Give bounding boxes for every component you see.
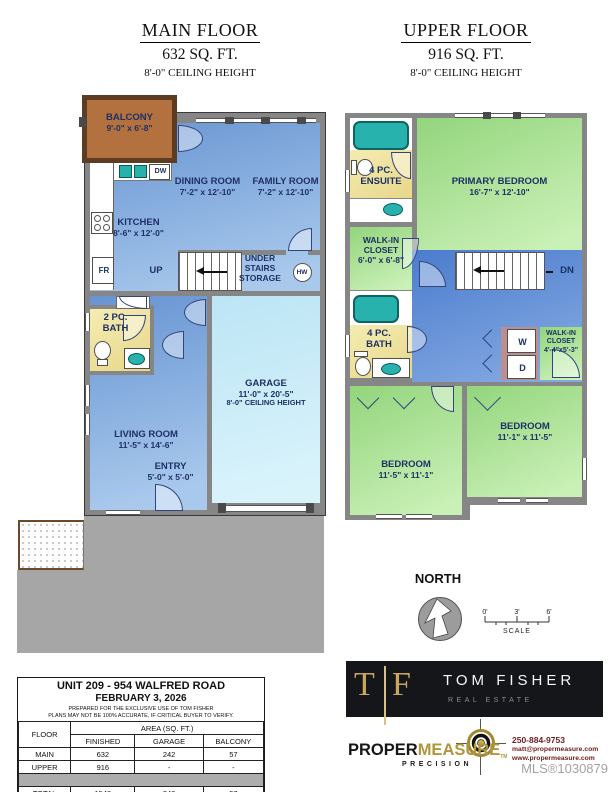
col-finished: FINISHED (71, 735, 135, 748)
window (106, 510, 140, 515)
stairs-arrow (203, 271, 227, 273)
scale-tick-0: 0' (482, 609, 487, 616)
toilet (94, 341, 111, 360)
prepared-note: PREPARED FOR THE EXCLUSIVE USE OF TOM FI… (18, 706, 264, 712)
wic2-line2: CLOSET (538, 338, 584, 346)
scale-bar: 0' 3' 6' SCALE (482, 605, 554, 635)
ensuite-tub (353, 121, 409, 150)
row-upper-balcony: - (203, 761, 263, 774)
entry-name: ENTRY (128, 461, 213, 472)
tf-divider (384, 666, 386, 725)
window (376, 514, 402, 519)
window-post (297, 117, 306, 124)
pm-precision: PRECISION (402, 761, 472, 768)
ensuite-line1: 4 PC. (350, 165, 412, 176)
upper-bath-label: 4 PC. BATH (350, 328, 408, 350)
wic1-dims: 6'-0" x 6'-8" (350, 255, 412, 265)
driveway (17, 495, 325, 653)
brand-name: TOM FISHER (443, 672, 575, 689)
total-label: TOTAL (19, 787, 71, 792)
total-balcony: 57 (203, 787, 263, 792)
garage-door-post (306, 503, 314, 513)
row-main-balcony: 57 (203, 748, 263, 761)
washer-label: W (508, 337, 537, 347)
dryer-label: D (508, 363, 537, 373)
main-floor-ceiling: 8'-0" CEILING HEIGHT (120, 67, 280, 79)
main-bath-line2: BATH (88, 323, 143, 334)
window (455, 113, 545, 118)
balcony-label: BALCONY 9'-0" x 6'-8" (87, 112, 172, 133)
dishwasher-label: DW (150, 168, 171, 175)
family-room-label: FAMILY ROOM 7'-2" x 12'-10" (238, 176, 333, 197)
dryer: D (507, 355, 536, 379)
bath-sink (381, 363, 401, 375)
washer: W (507, 329, 536, 353)
dn-label: DN (554, 265, 580, 276)
balcony-name: BALCONY (87, 112, 172, 123)
unit-address: UNIT 209 - 954 WALFRED ROAD (18, 678, 264, 692)
upper-floor-name: UPPER FLOOR (401, 20, 530, 43)
primary-name: PRIMARY BEDROOM (432, 176, 567, 187)
area-table: FLOOR AREA (SQ. FT.) FINISHED GARAGE BAL… (18, 721, 264, 792)
wall-segment (150, 305, 154, 375)
bedroom-right-label: BEDROOM 11'-1" x 11'-5" (470, 421, 580, 442)
kitchen-dims: 8'-6" x 12'-0" (96, 228, 181, 238)
info-table-header: UNIT 209 - 954 WALFRED ROAD FEBRUARY 3, … (18, 678, 264, 719)
hw-label: HW (294, 269, 310, 276)
total-garage: 242 (135, 787, 203, 792)
toilet (355, 357, 371, 376)
total-row: TOTAL 1548 242 57 (19, 787, 264, 792)
pm-measure: MEASURE (418, 741, 501, 759)
table-row: MAIN 632 242 57 (19, 748, 264, 761)
entry-dims: 5'-0" x 5'-0" (128, 472, 213, 482)
info-table: UNIT 209 - 954 WALFRED ROAD FEBRUARY 3, … (17, 677, 265, 792)
col-floor: FLOOR (19, 722, 71, 748)
wic1-line1: WALK-IN (350, 235, 412, 245)
primary-dims: 16'-7" x 12'-10" (432, 187, 567, 197)
pm-trademark: TM (500, 754, 507, 760)
living-name: LIVING ROOM (96, 429, 196, 440)
upper-bath-line2: BATH (350, 339, 408, 350)
main-bath-label: 2 PC. BATH (88, 312, 143, 334)
toilet-tank (97, 359, 108, 366)
kitchen-sink (119, 165, 132, 178)
bedroom-left-label: BEDROOM 11'-5" x 11'-1" (352, 459, 460, 480)
family-name: FAMILY ROOM (238, 176, 333, 187)
window-post (483, 112, 491, 119)
stairs-arrowhead (473, 266, 481, 274)
kitchen-label: KITCHEN 8'-6" x 12'-0" (96, 217, 181, 238)
spacer-row (19, 774, 264, 787)
bedroom-right-name: BEDROOM (470, 421, 580, 432)
row-upper-floor: UPPER (19, 761, 71, 774)
family-dims: 7'-2" x 12'-10" (238, 187, 333, 197)
main-floor-title: MAIN FLOOR 632 SQ. FT. 8'-0" CEILING HEI… (120, 20, 280, 79)
under-stairs-line1: UNDER (230, 253, 290, 263)
garage-door-post (218, 503, 226, 513)
mls-number: MLS®1030879 (500, 761, 608, 776)
under-stairs-label: UNDER STAIRS STORAGE (230, 253, 290, 283)
scale-tick-3: 3' (514, 609, 519, 616)
fridge-label: FR (93, 266, 115, 275)
upper-floor-ceiling: 8'-0" CEILING HEIGHT (386, 67, 546, 79)
bedroom-left-dims: 11'-5" x 11'-1" (352, 470, 460, 480)
wic2-dims: 4'-4"x5'-3" (538, 347, 584, 355)
bath-sink (128, 353, 145, 365)
window-post (225, 117, 234, 124)
upper-bath-line1: 4 PC. (350, 328, 408, 339)
living-dims: 11'-5" x 14'-6" (96, 440, 196, 450)
bath-tub (353, 295, 399, 323)
wic1-line2: CLOSET (350, 245, 412, 255)
tf-monogram-t: T (354, 668, 375, 702)
scale-label: SCALE (503, 628, 531, 635)
row-main-floor: MAIN (19, 748, 71, 761)
pm-proper: PROPER (348, 741, 418, 759)
ensuite-line2: ENSUITE (350, 176, 412, 187)
wic1-label: WALK-IN CLOSET 6'-0" x 6'-8" (350, 235, 412, 265)
primary-bedroom-label: PRIMARY BEDROOM 16'-7" x 12'-10" (432, 176, 567, 197)
window (406, 514, 432, 519)
living-room-label: LIVING ROOM 11'-5" x 14'-6" (96, 429, 196, 450)
main-floor-area: 632 SQ. FT. (120, 46, 280, 64)
entry-label: ENTRY 5'-0" x 5'-0" (128, 461, 213, 482)
col-balcony: BALCONY (203, 735, 263, 748)
brand-tagline: REAL ESTATE (448, 697, 533, 704)
accuracy-note: PLANS MAY NOT BE 100% ACCURATE, IF CRITI… (18, 713, 264, 719)
fridge: FR (92, 257, 114, 284)
garage-door (226, 505, 306, 512)
scale-tick-6: 6' (546, 609, 551, 616)
col-area: AREA (SQ. FT.) (71, 722, 264, 735)
plan-date: FEBRUARY 3, 2026 (18, 693, 264, 704)
up-label: UP (140, 265, 172, 276)
bedroom-left-name: BEDROOM (352, 459, 460, 470)
stairs-arrowhead (196, 267, 204, 275)
tom-fisher-logo: T F TOM FISHER REAL ESTATE (346, 661, 603, 717)
ensuite-sink (383, 203, 403, 216)
window (582, 458, 587, 480)
upper-floor-title: UPPER FLOOR 916 SQ. FT. 8'-0" CEILING HE… (386, 20, 546, 79)
phone-number: 250-884-9753 (512, 735, 598, 746)
ensuite-label: 4 PC. ENSUITE (350, 165, 412, 187)
window-post (513, 112, 521, 119)
patio (18, 520, 84, 570)
main-bath-line1: 2 PC. (88, 312, 143, 323)
row-main-garage: 242 (135, 748, 203, 761)
garage-ceiling: 8'-0" CEILING HEIGHT (216, 399, 316, 408)
email-address: matt@propermeasure.com (512, 746, 598, 755)
table-row: UPPER 916 - - (19, 761, 264, 774)
main-floor-name: MAIN FLOOR (140, 20, 261, 43)
propermeasure-logo: PROPERMEASURETM (348, 741, 507, 760)
window (85, 414, 90, 435)
bedroom-right-dims: 11'-1" x 11'-5" (470, 432, 580, 442)
upper-floor-area: 916 SQ. FT. (386, 46, 546, 64)
balcony-post (79, 117, 86, 127)
wic2-label: WALK-IN CLOSET 4'-4"x5'-3" (538, 330, 584, 355)
row-upper-finished: 916 (71, 761, 135, 774)
north-label: NORTH (408, 571, 468, 586)
stairs-arrow (480, 270, 504, 272)
row-main-finished: 632 (71, 748, 135, 761)
hot-water-tank: HW (293, 263, 312, 282)
balcony-dims: 9'-0" x 6'-8" (87, 123, 172, 133)
contact-block: 250-884-9753 matt@propermeasure.com www.… (512, 735, 598, 764)
wic2-line1: WALK-IN (538, 330, 584, 338)
spacer-cell (19, 774, 264, 787)
row-upper-garage: - (135, 761, 203, 774)
col-garage: GARAGE (135, 735, 203, 748)
tf-monogram-f: F (392, 668, 411, 702)
total-finished: 1548 (71, 787, 135, 792)
kitchen-sink (134, 165, 147, 178)
dn-dash (546, 271, 553, 273)
kitchen-name: KITCHEN (96, 217, 181, 228)
garage-name: GARAGE (216, 378, 316, 389)
wall-segment (90, 371, 154, 375)
under-stairs-line3: STORAGE (230, 273, 290, 283)
compass-icon (417, 596, 463, 642)
window-post (261, 117, 270, 124)
floor-plan-page: MAIN FLOOR 632 SQ. FT. 8'-0" CEILING HEI… (0, 0, 612, 792)
garage-label: GARAGE 11'-0" x 20'-5" 8'-0" CEILING HEI… (216, 378, 316, 408)
window (498, 498, 520, 503)
window (85, 385, 90, 406)
window (526, 498, 548, 503)
under-stairs-line2: STAIRS (230, 263, 290, 273)
